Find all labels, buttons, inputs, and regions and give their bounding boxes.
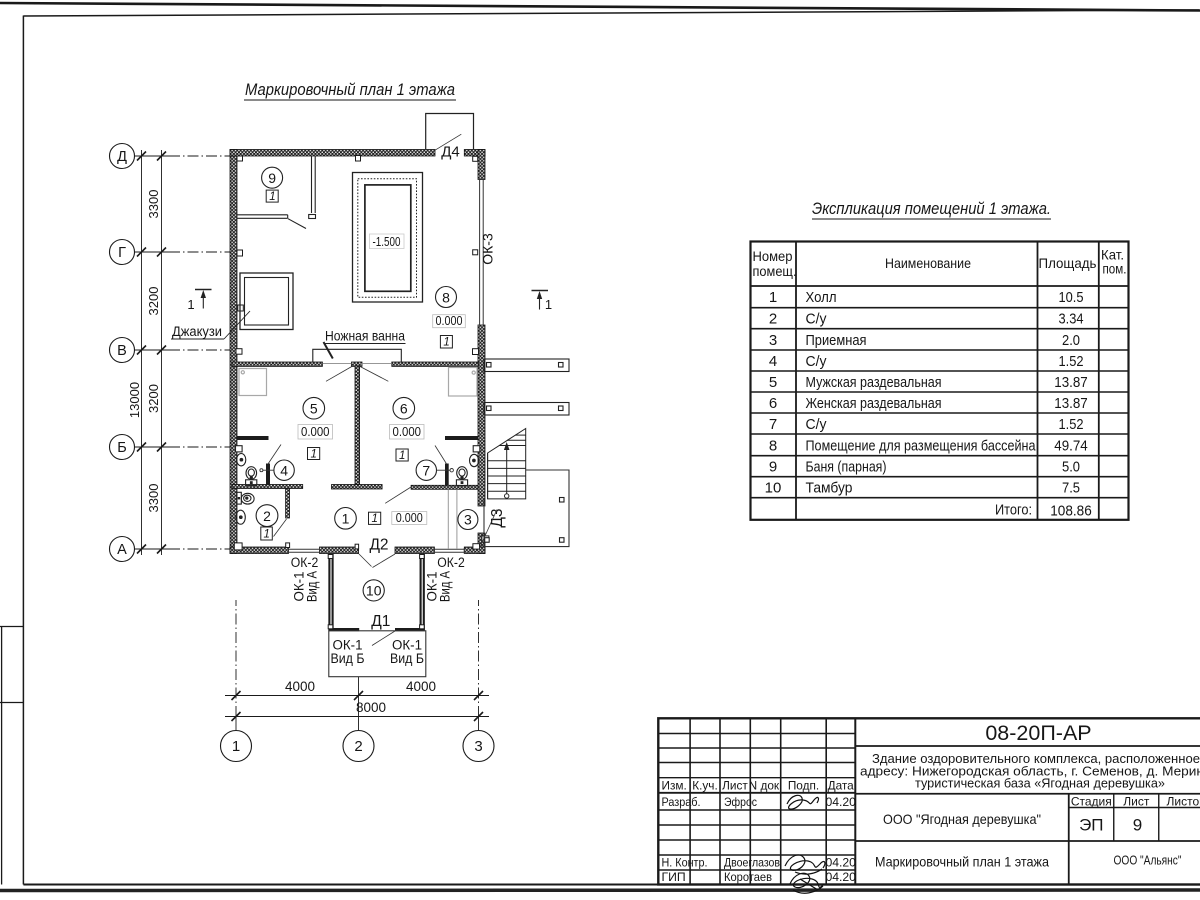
svg-text:Д4: Д4 xyxy=(441,144,460,161)
svg-text:3200: 3200 xyxy=(146,287,161,316)
svg-text:С/у: С/у xyxy=(806,416,827,433)
svg-text:ОК-2: ОК-2 xyxy=(291,555,319,570)
svg-text:Помещение для размещения бассе: Помещение для размещения бассейна xyxy=(806,438,1037,455)
svg-text:Лист: Лист xyxy=(722,778,748,792)
svg-text:В: В xyxy=(117,343,127,359)
svg-text:9: 9 xyxy=(769,459,777,476)
svg-text:Ножная ванна: Ножная ванна xyxy=(325,328,405,344)
svg-text:3: 3 xyxy=(769,332,777,349)
svg-text:3300: 3300 xyxy=(146,484,161,513)
svg-text:108.86: 108.86 xyxy=(1050,503,1092,520)
svg-text:Лист: Лист xyxy=(1123,795,1150,809)
svg-text:1: 1 xyxy=(342,511,350,527)
svg-text:2: 2 xyxy=(354,738,362,755)
svg-text:Стадия: Стадия xyxy=(1071,795,1112,809)
svg-text:3300: 3300 xyxy=(146,190,161,219)
svg-text:ГИП: ГИП xyxy=(662,870,686,884)
svg-text:6: 6 xyxy=(400,401,408,417)
svg-text:13000: 13000 xyxy=(127,382,142,418)
svg-text:Разраб.: Разраб. xyxy=(662,795,701,809)
svg-text:ОК-3: ОК-3 xyxy=(480,233,496,265)
svg-text:-1.500: -1.500 xyxy=(373,235,401,249)
svg-text:туристическая база «Ягодная де: туристическая база «Ягодная деревушка» xyxy=(915,776,1165,791)
svg-text:Двоеглазов: Двоеглазов xyxy=(724,855,780,869)
svg-text:10.5: 10.5 xyxy=(1059,289,1084,306)
svg-text:1: 1 xyxy=(310,448,316,460)
svg-text:Итого:: Итого: xyxy=(995,502,1032,519)
svg-text:5.0: 5.0 xyxy=(1062,459,1080,476)
svg-text:Женская раздевальная: Женская раздевальная xyxy=(806,395,942,412)
svg-text:1: 1 xyxy=(443,337,449,349)
svg-text:8000: 8000 xyxy=(356,700,386,715)
svg-text:3: 3 xyxy=(464,512,472,528)
svg-text:1.52: 1.52 xyxy=(1059,353,1084,370)
svg-text:Вид Б: Вид Б xyxy=(390,651,424,666)
svg-text:3: 3 xyxy=(474,738,482,755)
svg-text:1: 1 xyxy=(269,191,275,203)
svg-text:Баня (парная): Баня (парная) xyxy=(806,459,887,476)
svg-text:Наименование: Наименование xyxy=(885,255,971,271)
svg-text:Подп.: Подп. xyxy=(788,778,819,792)
svg-text:С/у: С/у xyxy=(806,353,827,370)
svg-text:4: 4 xyxy=(769,353,777,370)
svg-text:Н. Контр.: Н. Контр. xyxy=(662,855,708,869)
svg-text:1: 1 xyxy=(187,297,194,312)
svg-text:Маркировочный план 1 этажа: Маркировочный план 1 этажа xyxy=(875,854,1049,870)
svg-text:04.20: 04.20 xyxy=(825,870,856,884)
svg-text:49.74: 49.74 xyxy=(1054,438,1088,455)
svg-text:Листов: Листов xyxy=(1167,795,1200,809)
svg-text:10: 10 xyxy=(366,583,382,599)
svg-text:0.000: 0.000 xyxy=(301,424,330,439)
svg-text:ЭП: ЭП xyxy=(1079,816,1103,835)
svg-text:Мужская раздевальная: Мужская раздевальная xyxy=(806,374,942,391)
svg-text:А: А xyxy=(117,542,127,558)
svg-text:10: 10 xyxy=(765,480,782,497)
svg-text:2.0: 2.0 xyxy=(1062,332,1080,349)
svg-text:1.52: 1.52 xyxy=(1059,416,1084,433)
svg-text:Эфрос: Эфрос xyxy=(724,795,757,809)
svg-text:Д1: Д1 xyxy=(371,613,390,630)
svg-text:Номер: Номер xyxy=(753,248,793,264)
svg-text:Площадь: Площадь xyxy=(1039,255,1097,271)
svg-text:Приемная: Приемная xyxy=(806,332,867,349)
svg-text:N док.: N док. xyxy=(749,778,783,792)
svg-text:1: 1 xyxy=(769,289,777,306)
svg-text:пом.: пом. xyxy=(1103,261,1127,277)
svg-text:2: 2 xyxy=(769,311,777,328)
svg-text:0.000: 0.000 xyxy=(396,511,423,525)
svg-text:4: 4 xyxy=(280,462,288,478)
svg-text:Маркировочный план 1 этажа: Маркировочный план 1 этажа xyxy=(245,80,455,99)
svg-text:1: 1 xyxy=(399,450,405,462)
svg-text:9: 9 xyxy=(1133,816,1142,835)
svg-text:Д: Д xyxy=(117,149,127,165)
svg-text:8: 8 xyxy=(769,438,777,455)
svg-text:1: 1 xyxy=(371,513,377,525)
svg-text:5: 5 xyxy=(310,401,318,417)
svg-text:Вид А: Вид А xyxy=(305,571,320,602)
svg-text:4000: 4000 xyxy=(406,679,436,694)
svg-text:3.34: 3.34 xyxy=(1059,311,1084,328)
svg-text:5: 5 xyxy=(769,374,777,391)
svg-text:1: 1 xyxy=(263,529,269,541)
svg-text:Холл: Холл xyxy=(806,289,837,306)
svg-text:7: 7 xyxy=(769,416,777,433)
svg-text:04.20: 04.20 xyxy=(825,855,856,869)
svg-text:8: 8 xyxy=(442,289,450,305)
svg-text:ОК-2: ОК-2 xyxy=(437,555,465,570)
svg-text:Д3: Д3 xyxy=(489,508,506,527)
svg-text:7.5: 7.5 xyxy=(1062,480,1080,497)
svg-text:08-20П-АР: 08-20П-АР xyxy=(985,721,1091,745)
svg-text:Экспликация помещений 1 этажа.: Экспликация помещений 1 этажа. xyxy=(812,199,1051,218)
svg-text:Дата: Дата xyxy=(828,778,855,792)
svg-text:Д2: Д2 xyxy=(369,537,388,554)
svg-text:0.000: 0.000 xyxy=(436,314,463,328)
svg-text:помещ.: помещ. xyxy=(753,263,797,279)
svg-text:9: 9 xyxy=(268,170,276,186)
svg-text:0.000: 0.000 xyxy=(393,424,422,439)
svg-text:ООО "Ягодная деревушка": ООО "Ягодная деревушка" xyxy=(883,811,1041,827)
svg-text:Вид Б: Вид Б xyxy=(331,651,365,666)
svg-text:3200: 3200 xyxy=(146,384,161,413)
svg-text:С/у: С/у xyxy=(806,311,827,328)
svg-text:4000: 4000 xyxy=(285,679,315,694)
svg-text:ООО "Альянс": ООО "Альянс" xyxy=(1114,854,1182,868)
svg-text:К.уч.: К.уч. xyxy=(692,778,717,792)
svg-text:Б: Б xyxy=(117,440,127,456)
svg-text:04.20: 04.20 xyxy=(825,795,856,809)
svg-text:2: 2 xyxy=(263,508,271,524)
svg-text:1: 1 xyxy=(232,738,240,755)
svg-text:Изм.: Изм. xyxy=(662,778,687,792)
svg-text:13.87: 13.87 xyxy=(1054,374,1088,391)
svg-text:Коротаев: Коротаев xyxy=(724,870,772,884)
svg-text:6: 6 xyxy=(769,395,777,412)
svg-text:13.87: 13.87 xyxy=(1054,395,1088,412)
svg-text:Тамбур: Тамбур xyxy=(806,480,853,497)
svg-text:Вид А: Вид А xyxy=(438,571,453,602)
svg-text:Г: Г xyxy=(118,245,126,261)
svg-text:Джакузи: Джакузи xyxy=(172,324,222,339)
svg-text:7: 7 xyxy=(422,462,430,478)
svg-text:1: 1 xyxy=(545,297,552,312)
